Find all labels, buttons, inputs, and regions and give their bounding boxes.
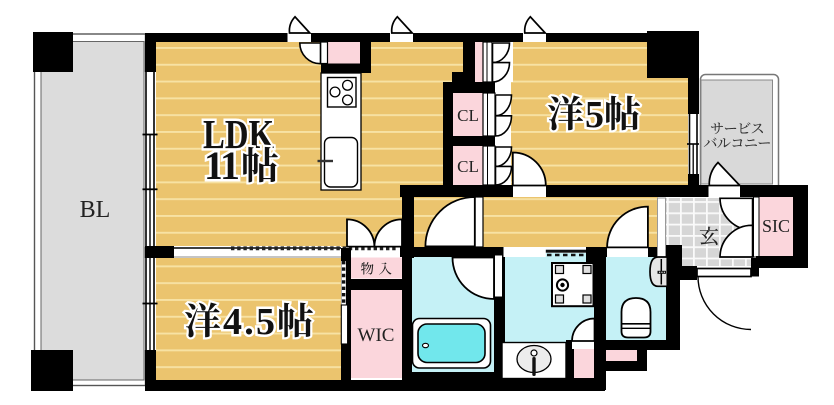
svg-text:SIC: SIC <box>762 216 790 236</box>
svg-text:CL: CL <box>457 106 479 125</box>
svg-text:CL: CL <box>457 157 479 176</box>
svg-text:WIC: WIC <box>358 325 395 346</box>
svg-text:5: 5 <box>585 94 604 136</box>
svg-text:4.5: 4.5 <box>223 301 275 343</box>
svg-text:BL: BL <box>80 197 111 223</box>
svg-text:11: 11 <box>204 143 240 188</box>
